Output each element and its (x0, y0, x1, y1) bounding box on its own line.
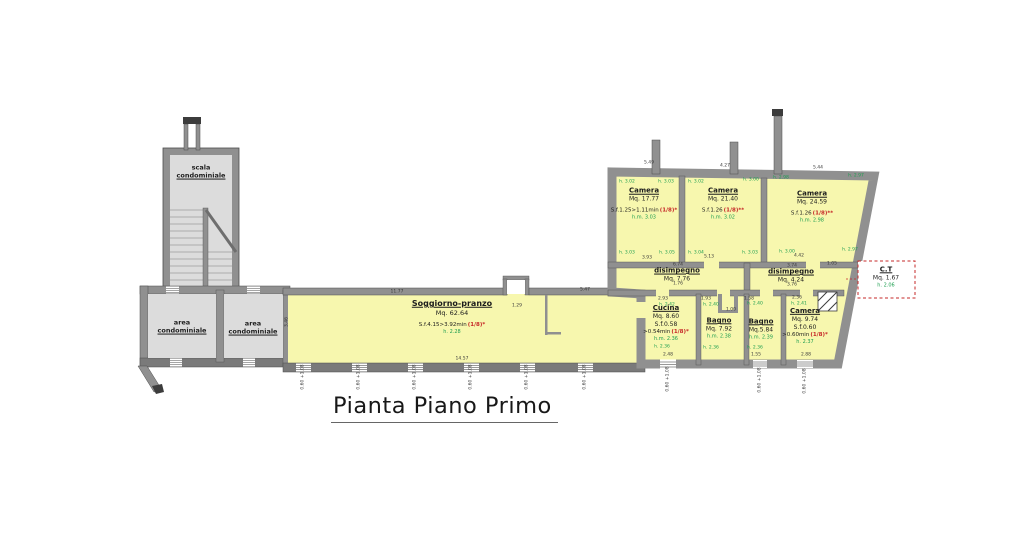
dim-label: 5.47 (580, 288, 590, 293)
dim-label: h. 3.04 (688, 251, 704, 256)
dim-label: h. 2.98 (773, 176, 789, 181)
room-label-camera-3: Camera Mq. 24.59 S.f.1.26(1/8)** h.m. 2.… (791, 190, 833, 225)
room-name: scala (177, 164, 226, 172)
dim-label: 2.93 (658, 297, 668, 302)
dim-label: h. 3.00 (779, 250, 795, 255)
dim-label: 0.60 +1.08 (301, 364, 306, 389)
dim-label: h. 2.40 (747, 302, 763, 307)
dim-label: h. 2.40 (703, 303, 719, 308)
room-name: condominiale (177, 172, 226, 180)
room-label-cucina: Cucina Mq. 8.60 S.f.0.58 >0.54min(1/8)* … (643, 304, 689, 342)
room-label-bagno-1: Bagno Mq. 7.92 h.m. 2.38 (706, 316, 732, 339)
dim-label: 0.60 +1.08 (666, 366, 671, 391)
dim-label: 3.46 (285, 317, 290, 327)
dim-label: 5.44 (813, 166, 823, 171)
dim-label: 11.77 (391, 290, 404, 295)
room-label-camera-1: Camera Mq. 17.77 S.f.1.25>1.11min(1/8)* … (611, 187, 678, 222)
dim-label: 0.60 +1.08 (469, 364, 474, 389)
dim-label: 14.57 (456, 357, 469, 362)
dim-label: h. 3.03 (619, 251, 635, 256)
dim-label: 0.60 +1.08 (803, 368, 808, 393)
room-label-area-condominiale-2: area condominiale (229, 320, 278, 337)
room-label-soggiorno: Soggiorno-pranzo Mq. 62.64 S.f.4.15>3.92… (412, 299, 492, 335)
dim-label: 1.00 (726, 308, 736, 313)
dim-label: 0.60 +1.08 (758, 367, 763, 392)
dim-label: 3.93 (642, 256, 652, 261)
dim-label: 4.27 (720, 164, 730, 169)
dim-label: h. 3.00 (743, 178, 759, 183)
dim-label: h. 2.36 (747, 346, 763, 351)
dim-label: 5.13 (704, 255, 714, 260)
dim-label: 5.49 (644, 161, 654, 166)
room-label-area-condominiale-1: area condominiale (158, 319, 207, 336)
dim-label: 0.60 +1.08 (583, 364, 588, 389)
common-area-rooms (138, 286, 290, 394)
dim-label: 1.55 (751, 353, 761, 358)
room-label-scala-condominiale: scala condominiale (177, 164, 226, 181)
room-label-camera-2: Camera Mq. 21.40 S.f.1.26(1/8)** h.m. 3.… (702, 187, 744, 222)
dim-label: 1.29 (512, 304, 522, 309)
dim-label: 4.42 (794, 254, 804, 259)
dim-label: 0.60 +1.08 (357, 364, 362, 389)
dim-label: h. 3.02 (688, 180, 704, 185)
dim-label: h. 3.03 (658, 180, 674, 185)
dim-label: h. 3.02 (619, 180, 635, 185)
staircase-block (163, 117, 239, 296)
room-label-bagno-2: Bagno Mq.5.84 h.m. 2.39 (749, 317, 774, 340)
room-label-disimpegno-2: disimpegno Mq. 4.24 (768, 268, 814, 285)
room-label-disimpegno-1: disimpegno Mq. 7.76 (654, 267, 700, 284)
dim-label: h. 2.97 (848, 174, 864, 179)
dim-label: h. 3.03 (742, 251, 758, 256)
dim-label: 1.93 (701, 297, 711, 302)
floor-plan-drawing (0, 0, 1021, 550)
dim-label: h. 3.05 (659, 251, 675, 256)
dim-label: h. 2.36 (654, 345, 670, 350)
dim-label: 2.48 (663, 353, 673, 358)
page-title: Pianta Piano Primo (331, 393, 558, 423)
dim-label: 0.60 +1.08 (413, 364, 418, 389)
dim-label: h. 2.97 (842, 248, 858, 253)
dim-label: h. 2.41 (791, 302, 807, 307)
dim-label: 0.60 +1.08 (525, 364, 530, 389)
dim-label: 2.36 (792, 296, 802, 301)
room-label-ct: C.T Mq. 1.67 h. 2.06 (873, 265, 899, 288)
floor-plan: scala condominiale area condominiale are… (0, 0, 1021, 550)
room-label-camera-4: Camera Mq. 9.74 S.f.0.60 >0.60min(1/8)* … (782, 307, 828, 345)
dim-label: h. 2.36 (703, 346, 719, 351)
dim-label: 2.88 (801, 353, 811, 358)
dim-label: 1.05 (827, 262, 837, 267)
